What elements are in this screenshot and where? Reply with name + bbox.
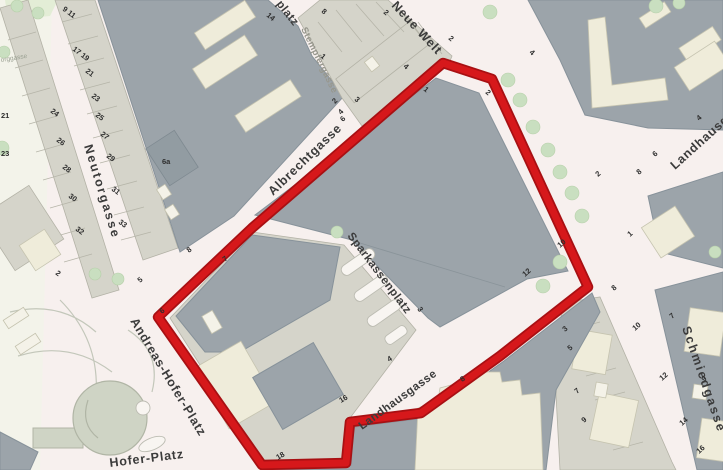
house-number: 6a [162, 157, 171, 166]
house-number: 21 [1, 111, 9, 120]
map-canvas: Neutorgasse Albrechtgasse Sparkassenplat… [0, 0, 723, 470]
city-map[interactable]: Neutorgasse Albrechtgasse Sparkassenplat… [0, 0, 723, 470]
house-number: 23 [1, 149, 9, 158]
